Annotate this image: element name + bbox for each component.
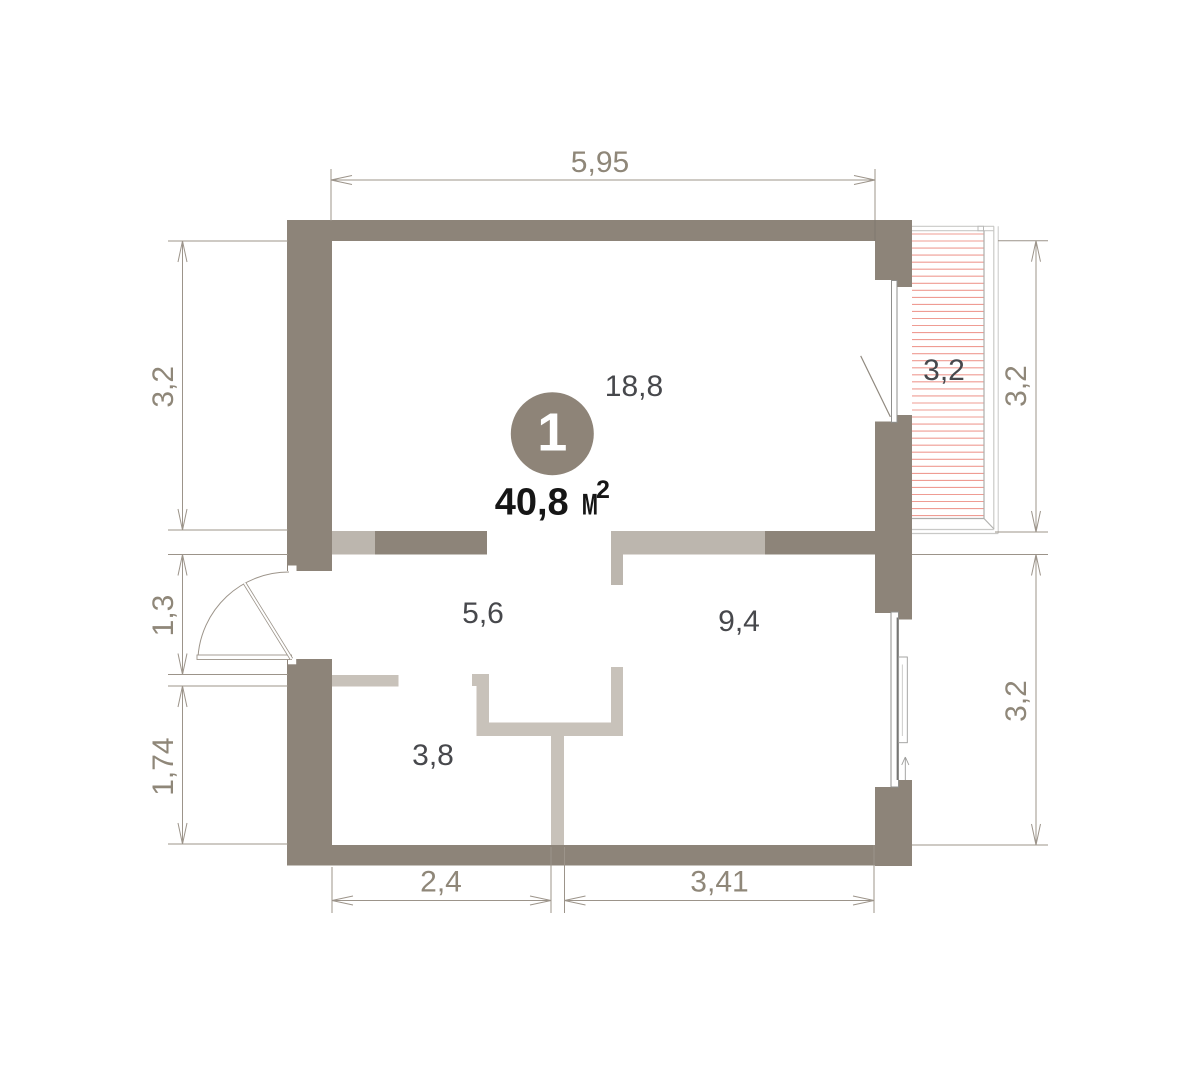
svg-text:3,41: 3,41 — [690, 866, 748, 899]
svg-text:2: 2 — [596, 476, 610, 504]
svg-text:3,8: 3,8 — [412, 739, 454, 772]
svg-text:1: 1 — [537, 403, 567, 463]
svg-text:5,95: 5,95 — [571, 146, 629, 179]
svg-text:9,4: 9,4 — [718, 605, 760, 638]
svg-text:3,2: 3,2 — [1000, 365, 1033, 407]
svg-text:3,2: 3,2 — [923, 354, 965, 387]
svg-text:18,8: 18,8 — [605, 370, 663, 403]
svg-text:2,4: 2,4 — [420, 866, 462, 899]
svg-text:1,3: 1,3 — [147, 595, 180, 637]
svg-text:3,2: 3,2 — [147, 366, 180, 408]
svg-text:3,2: 3,2 — [1000, 680, 1033, 722]
svg-text:5,6: 5,6 — [462, 597, 504, 630]
svg-text:1,74: 1,74 — [147, 737, 180, 795]
svg-text:40,8: 40,8 — [495, 482, 569, 524]
